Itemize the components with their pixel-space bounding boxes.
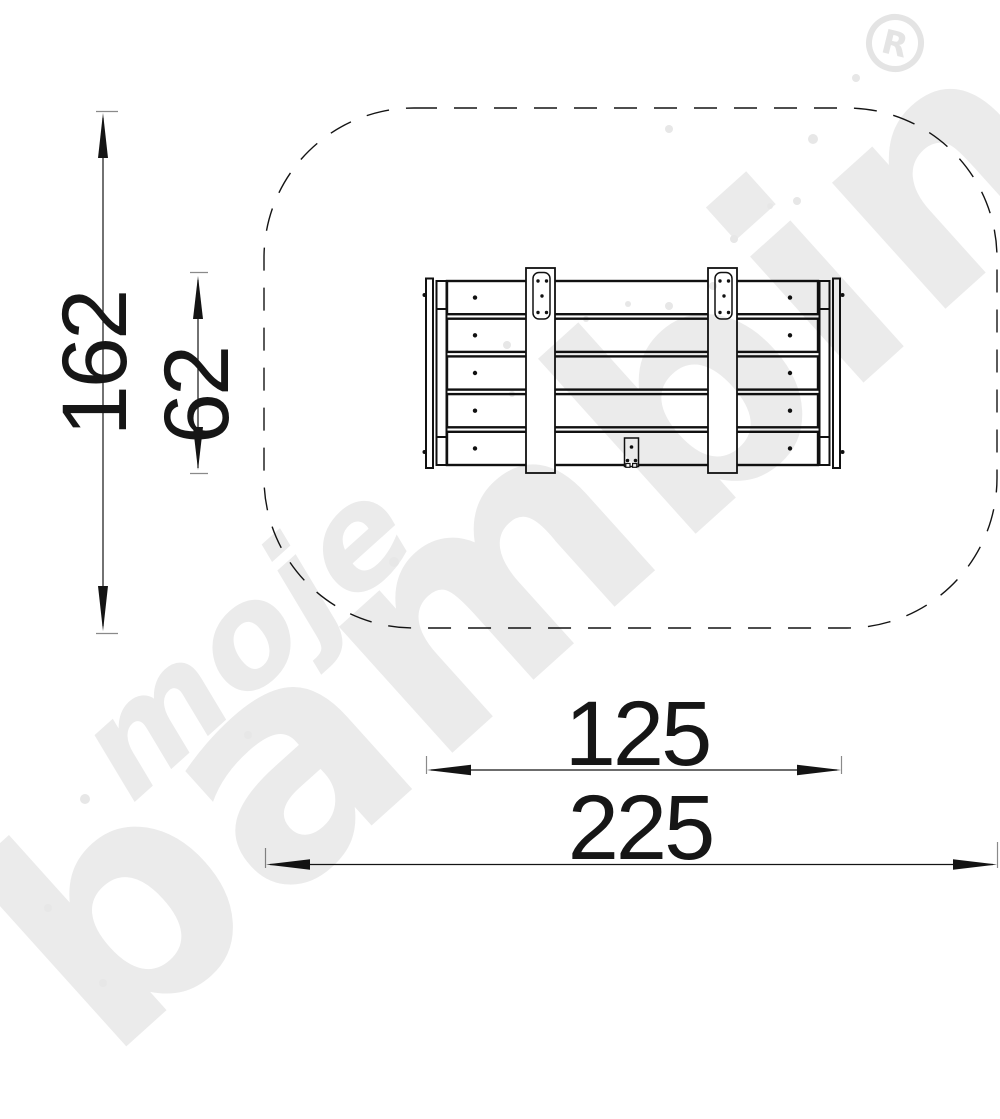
arrowhead-up-icon <box>193 276 203 319</box>
dimension-label-162: 162 <box>44 292 146 437</box>
sandbox-top-view <box>423 268 845 473</box>
technical-drawing: 162 62 125 225 <box>0 0 1000 1000</box>
plank <box>447 394 818 427</box>
dimension-safety-zone-depth: 162 <box>44 112 146 634</box>
dimension-safety-zone-width: 225 <box>266 777 998 879</box>
right-end-board <box>820 279 841 469</box>
plank <box>447 356 818 389</box>
arrowhead-left-icon <box>427 765 471 775</box>
arrowhead-down-icon <box>98 586 108 631</box>
arrowhead-right-icon <box>797 765 841 775</box>
plank <box>447 319 818 352</box>
arrowhead-left-icon <box>266 859 310 869</box>
anchor-bracket <box>625 438 639 467</box>
dimension-label-62: 62 <box>146 348 248 444</box>
arrowhead-up-icon <box>98 113 108 158</box>
left-end-board <box>426 279 447 469</box>
dimension-label-225: 225 <box>568 777 713 879</box>
plank <box>447 281 818 314</box>
dimension-item-width: 125 <box>427 683 842 785</box>
dimension-label-125: 125 <box>565 683 710 785</box>
dimension-item-depth: 62 <box>146 273 248 474</box>
arrowhead-right-icon <box>953 859 997 869</box>
